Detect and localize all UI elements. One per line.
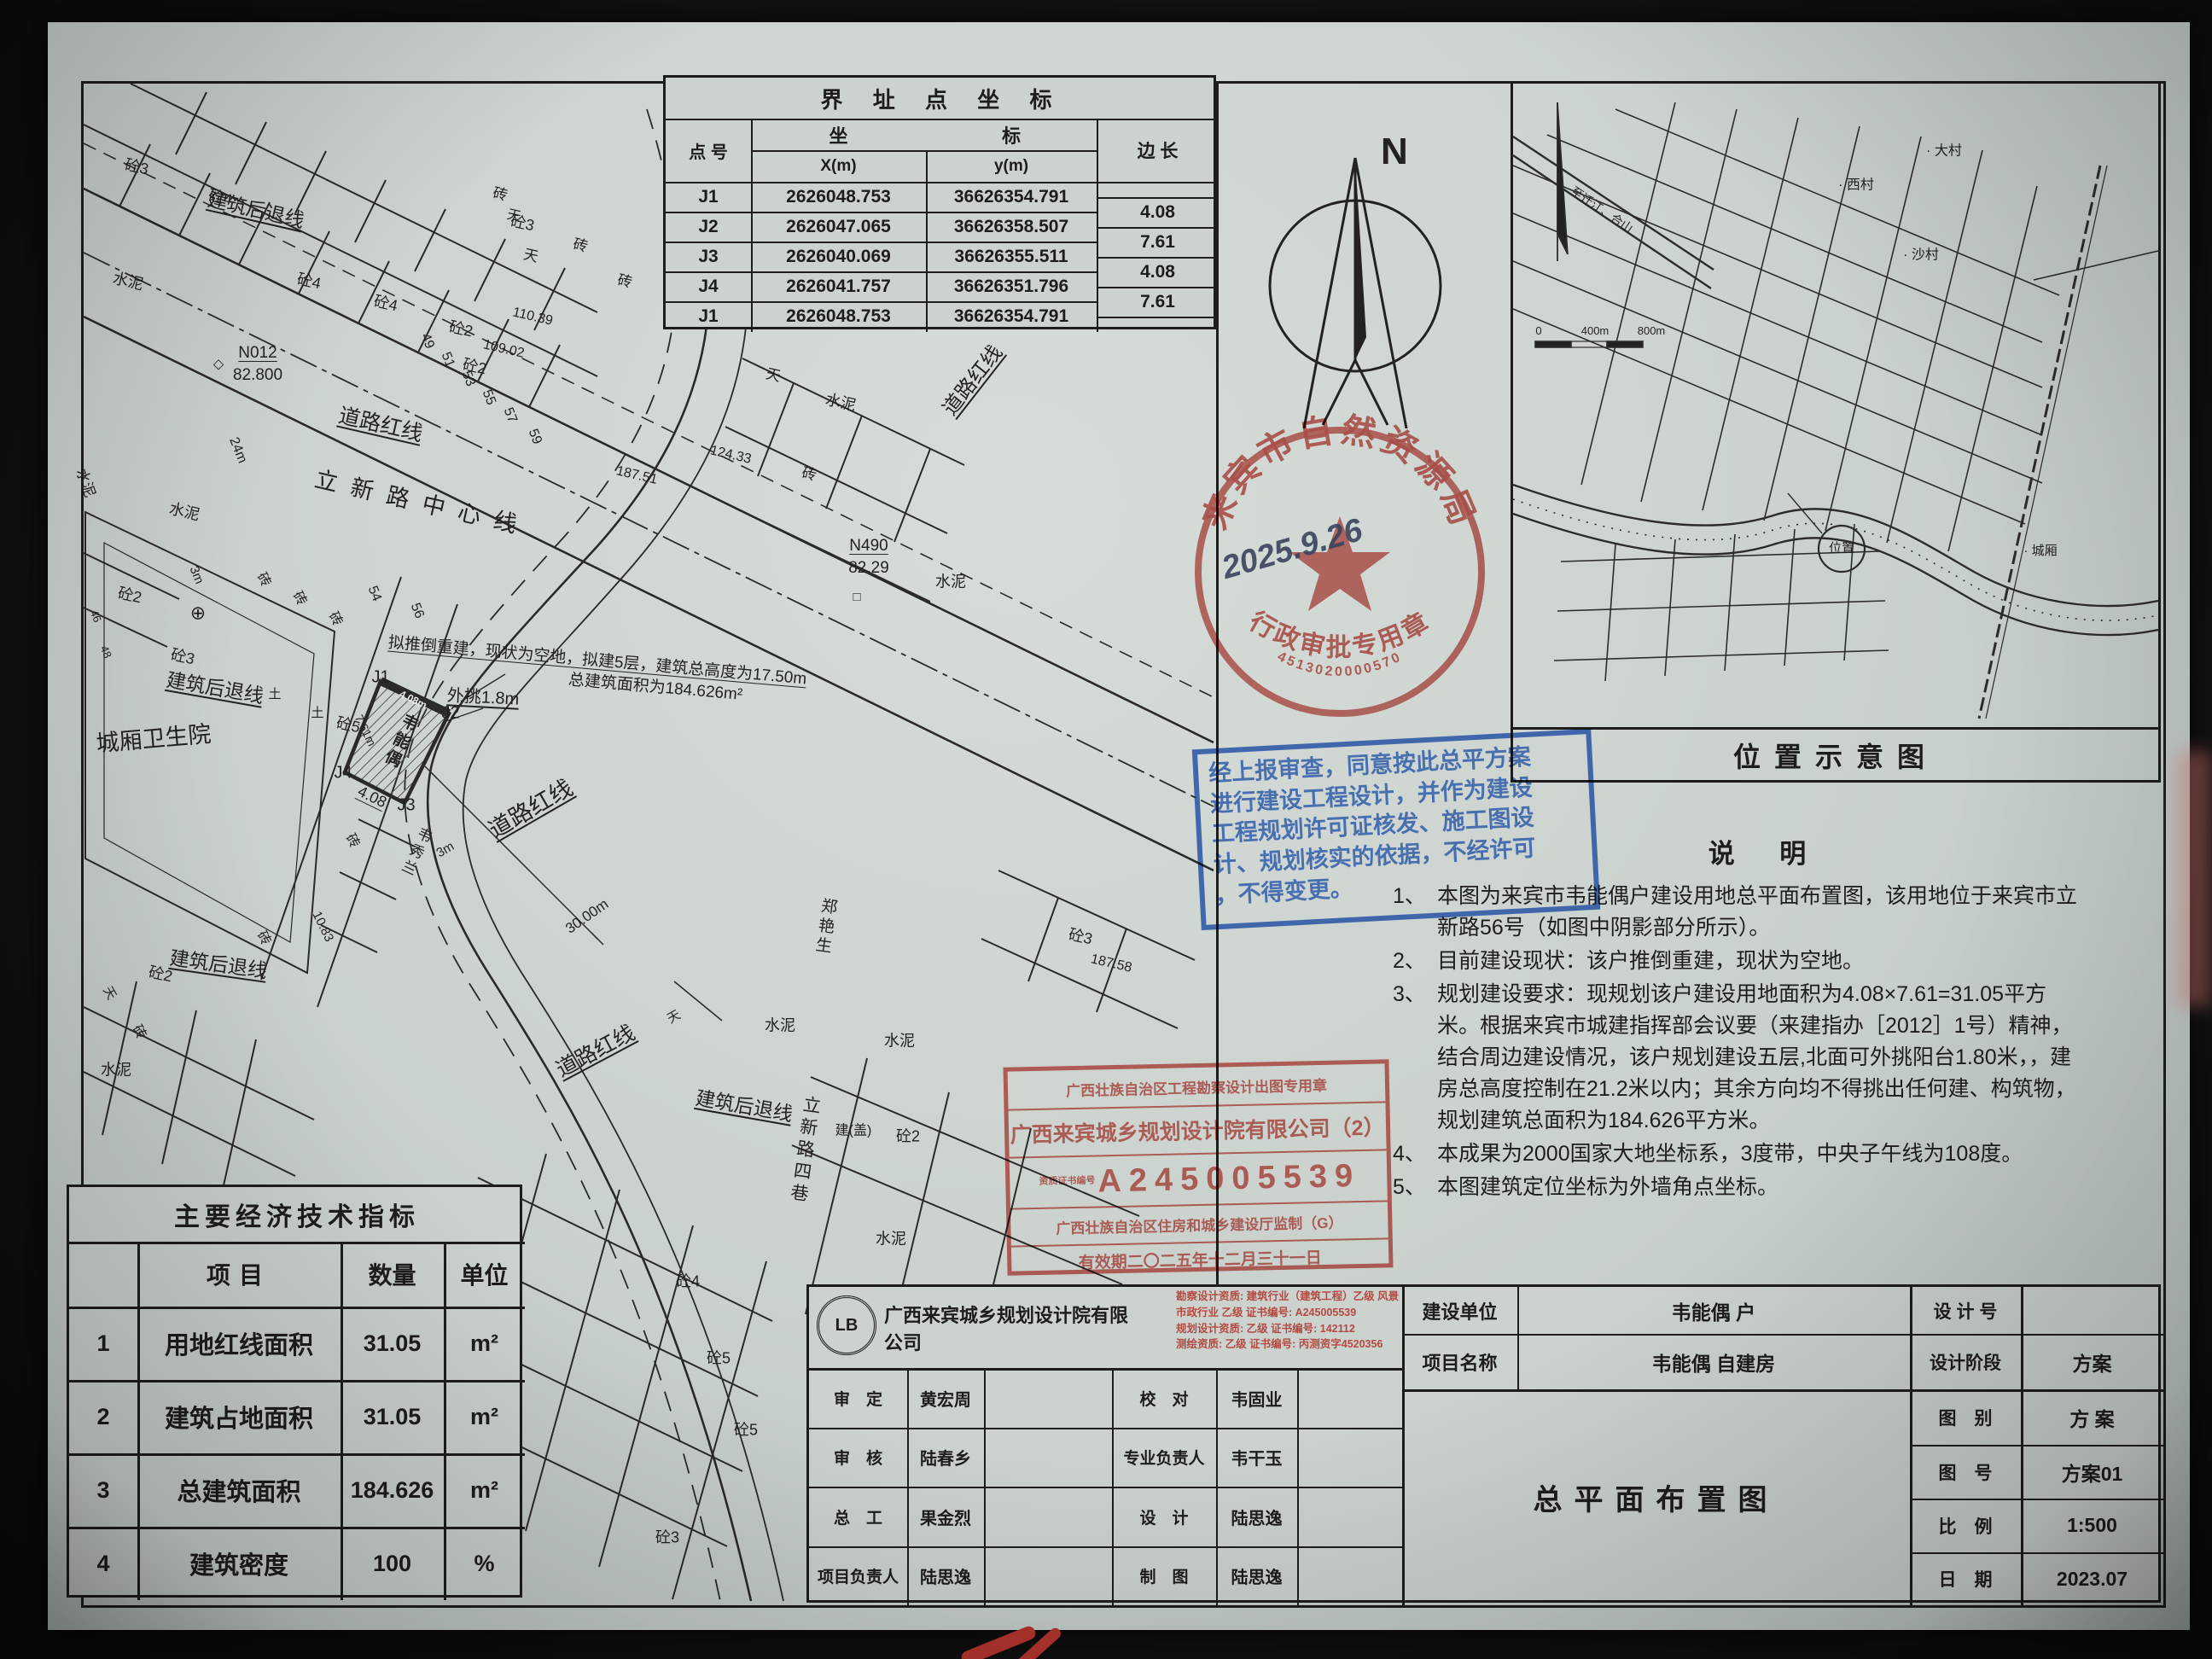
- notes-list: 1、本图为来宾市韦能偶户建设用地总平面布置图，该用地位于来宾市立新路56号（如图…: [1393, 881, 2084, 1205]
- coord-col-zuo: 坐: [751, 119, 926, 150]
- note-item: 2、目前建设现状：该户推倒重建，现状为空地。: [1393, 946, 2084, 977]
- person-name: 果金烈: [907, 1487, 984, 1546]
- plan-label: 砼5: [707, 1351, 731, 1367]
- coord-x: 2626048.753: [751, 182, 926, 212]
- note-number: 4、: [1393, 1138, 1437, 1170]
- plan-label: N012: [238, 345, 276, 362]
- plan-label: ◇: [213, 358, 224, 373]
- note-text: 规划建设要求：现规划该户建设用地面积为4.08×7.61=31.05平方米。根据…: [1437, 979, 2084, 1137]
- cat-value: 方 案: [2021, 1389, 2163, 1445]
- coord-x: 2626047.065: [751, 212, 926, 242]
- location-map-caption: 位置示意图: [1513, 727, 2158, 780]
- note-text: 本成果为2000国家大地坐标系，3度带，中央子午线为108度。: [1437, 1138, 2084, 1170]
- coord-point: J1: [666, 182, 751, 212]
- plan-label: 水泥: [101, 1062, 131, 1079]
- plan-label: J4: [334, 765, 352, 783]
- coord-edge: 7.61: [1097, 227, 1219, 257]
- map-label: 位置: [1829, 542, 1854, 556]
- grid-line: [1097, 317, 1219, 318]
- person-signature: 陆思逸: [1294, 1540, 1405, 1611]
- plan-label: 水泥: [765, 1018, 795, 1034]
- red-qualification-stamp: 广西壮族自治区工程勘察设计出图专用章 广西来宾城乡规划设计院有限公司（2） 资质…: [1003, 1059, 1393, 1275]
- design-no-label: 设 计 号: [1910, 1287, 2021, 1334]
- plan-label: N490: [849, 538, 888, 555]
- plan-label: 砼2: [896, 1129, 920, 1145]
- project-label: 项目名称: [1402, 1334, 1517, 1389]
- person-name: 韦固业: [1216, 1368, 1297, 1428]
- role-label: 审 核: [809, 1428, 907, 1487]
- sheet-label: 图 号: [1910, 1445, 2021, 1499]
- company-logo: LB: [817, 1295, 876, 1355]
- note-item: 3、规划建设要求：现规划该户建设用地面积为4.08×7.61=31.05平方米。…: [1393, 979, 2084, 1137]
- plan-label: 水泥: [935, 574, 966, 591]
- indicator-cell: 4: [69, 1527, 137, 1600]
- credential-line: 规划设计资质: 乙级 证书编号: 142112: [1176, 1321, 1400, 1337]
- map-label: 800m: [1638, 325, 1666, 337]
- cat-label: 图 别: [1910, 1389, 2021, 1445]
- location-map: · 大村· 西村· 沙村· 城厢至迁江、合山0400m800m位置 位置示意图: [1511, 81, 2161, 783]
- note-text: 本图建筑定位坐标为外墙角点坐标。: [1437, 1172, 2084, 1203]
- coord-x: 2626041.757: [751, 271, 926, 301]
- map-label: · 大村: [1926, 145, 1962, 160]
- coord-table-title: 界 址 点 坐 标: [666, 78, 1219, 119]
- coord-edge: 7.61: [1097, 287, 1219, 317]
- person-name: 陆思逸: [1216, 1546, 1297, 1605]
- coord-y: 36626351.796: [926, 271, 1097, 301]
- sheet-value: 方案01: [2021, 1445, 2163, 1499]
- indicator-cell: 184.626: [341, 1453, 444, 1527]
- company-name: 广西来宾城乡规划设计院有限公司: [884, 1294, 1140, 1362]
- indicator-cell: 3: [69, 1453, 137, 1527]
- economic-indicator-table: 主要经济技术指标 项目 数量 单位 1用地红线面积31.05m²2建筑占地面积3…: [67, 1185, 522, 1598]
- plan-label: J2: [441, 705, 459, 723]
- role-label: 审 定: [809, 1368, 907, 1428]
- coord-x: 2626040.069: [751, 242, 926, 271]
- coord-col-point: 点 号: [666, 119, 751, 182]
- indicator-cell: 1: [69, 1307, 137, 1380]
- drawing-title: 总平面布置图: [1402, 1389, 1910, 1605]
- indicator-col-unit: 单位: [444, 1242, 525, 1307]
- design-no-value: [2021, 1287, 2163, 1334]
- scale-label: 比 例: [1910, 1499, 2021, 1552]
- map-label: 400m: [1581, 325, 1610, 337]
- note-item: 5、本图建筑定位坐标为外墙角点坐标。: [1393, 1172, 2084, 1203]
- coord-point: J2: [666, 212, 751, 242]
- notes-title: 说 明: [1673, 832, 1860, 870]
- plan-label: 砼3: [655, 1530, 679, 1546]
- plan-label: 土: [311, 707, 323, 720]
- role-label: 制 图: [1112, 1546, 1216, 1605]
- coord-point: J1: [666, 301, 751, 332]
- role-label: 项目负责人: [809, 1546, 907, 1605]
- map-label: · 城厢: [2023, 544, 2057, 558]
- coord-x: 2626048.753: [751, 301, 926, 332]
- plan-label: ⊕: [190, 602, 206, 622]
- person-name: 韦干玉: [1216, 1428, 1297, 1487]
- plan-label: □: [853, 591, 860, 604]
- indicator-cell: 建筑密度: [137, 1527, 341, 1600]
- north-compass: N: [1270, 111, 1441, 435]
- red-stamp-cert-no: A245005539: [1097, 1158, 1360, 1200]
- indicator-cell: %: [444, 1527, 525, 1600]
- person-name: 黄宏周: [907, 1368, 984, 1428]
- location-map-drawing: [1513, 84, 2158, 728]
- coord-edge: 4.08: [1097, 197, 1219, 227]
- date-value: 2023.07: [2021, 1552, 2163, 1605]
- coord-y: 36626354.791: [926, 301, 1097, 332]
- indicator-cell: 建筑占地面积: [137, 1380, 341, 1453]
- photographed-site-plan-sheet: 建筑后退线砼3水泥砼4砼4砼4砼2砖天砖砖砼3110.39砼2109.02◇N0…: [0, 0, 2212, 1659]
- note-number: 3、: [1393, 979, 1437, 1137]
- stage-label: 设计阶段: [1910, 1334, 2021, 1389]
- coord-y: 36626354.791: [926, 182, 1097, 212]
- map-label: · 沙村: [1903, 249, 1939, 264]
- indicator-cell: 100: [341, 1527, 444, 1600]
- coord-col-x: X(m): [751, 150, 926, 182]
- indicator-cell: 总建筑面积: [137, 1453, 341, 1527]
- red-stamp-cert-label: 资质证书编号: [1036, 1176, 1097, 1189]
- indicator-title: 主要经济技术指标: [69, 1187, 525, 1242]
- indicator-cell: 31.05: [341, 1380, 444, 1453]
- indicator-col-qty: 数量: [341, 1242, 444, 1307]
- plan-label: 水泥: [876, 1231, 906, 1248]
- coord-y: 36626358.507: [926, 212, 1097, 242]
- boundary-point-coordinate-table: 界 址 点 坐 标 点 号 坐 标 X(m) y(m) 边 长 J1262604…: [663, 75, 1216, 329]
- indicator-cell: 用地红线面积: [137, 1307, 341, 1380]
- note-item: 4、本成果为2000国家大地坐标系，3度带，中央子午线为108度。: [1393, 1138, 2084, 1170]
- plan-label: J3: [397, 797, 415, 815]
- coord-col-edge: 边 长: [1097, 119, 1219, 182]
- coord-y: 36626355.511: [926, 242, 1097, 271]
- plan-label: 土: [268, 688, 281, 701]
- coord-edge: 4.08: [1097, 257, 1219, 287]
- svg-text:行政审批专用章: 行政审批专用章: [1243, 606, 1435, 662]
- role-label: 总 工: [809, 1487, 907, 1546]
- plan-label: 砼5: [734, 1423, 758, 1439]
- plan-label: 82.800: [233, 367, 282, 384]
- plan-label: J1: [371, 669, 389, 687]
- stamp-sub-text: 行政审批专用章: [1243, 606, 1435, 662]
- indicator-cell: m²: [444, 1380, 525, 1453]
- credential-line: 勘察设计资质: 建筑行业（建筑工程）乙级 风景园林: [1176, 1289, 1400, 1305]
- coord-point: J3: [666, 242, 751, 271]
- date-label: 日 期: [1910, 1552, 2021, 1605]
- indicator-cell: 2: [69, 1380, 137, 1453]
- credential-line: 市政行业 乙级 证书编号: A245005539: [1176, 1305, 1400, 1321]
- coord-point: J4: [666, 271, 751, 301]
- blue-approval-stamp: 经上报审查，同意按此总平方案进行建设工程设计，并作为建设工程规划许可证核发、施工…: [1192, 729, 1600, 930]
- person-name: 陆思逸: [907, 1546, 984, 1605]
- client-value: 韦能偶 户: [1517, 1287, 1910, 1334]
- map-label: 0: [1535, 325, 1541, 337]
- person-name: 陆思逸: [1216, 1487, 1297, 1546]
- indicator-cell: 31.05: [341, 1307, 444, 1380]
- company-credentials: 勘察设计资质: 建筑行业（建筑工程）乙级 风景园林市政行业 乙级 证书编号: A…: [1176, 1289, 1400, 1364]
- note-number: 5、: [1393, 1172, 1437, 1203]
- scale-value: 1:500: [2021, 1499, 2163, 1552]
- indicator-cell: m²: [444, 1307, 525, 1380]
- credential-line: 测绘资质: 乙级 证书编号: 丙测资字4520356: [1176, 1336, 1400, 1353]
- note-text: 目前建设现状：该户推倒重建，现状为空地。: [1437, 946, 2084, 977]
- title-block: 广西来宾城乡规划设计院有限公司 审 定黄宏周黄宏周校 对韦固业韦固业审 核陆春乡…: [806, 1284, 2161, 1603]
- plan-label: 砼4: [676, 1274, 700, 1290]
- stage-value: 方案: [2021, 1334, 2163, 1389]
- plan-label: 水泥: [884, 1033, 915, 1050]
- project-value: 韦能偶 自建房: [1517, 1334, 1910, 1389]
- indicator-col-item: 项目: [137, 1242, 341, 1307]
- coord-col-biao: 标: [926, 119, 1097, 150]
- indicator-cell: m²: [444, 1453, 525, 1527]
- north-label: N: [1381, 131, 1408, 172]
- client-label: 建设单位: [1402, 1287, 1517, 1334]
- person-name: 陆春乡: [907, 1428, 984, 1487]
- plan-label: 82.29: [848, 560, 889, 577]
- plan-label: 建(盖): [835, 1125, 872, 1139]
- coord-col-y: y(m): [926, 150, 1097, 182]
- role-label: 设 计: [1112, 1487, 1216, 1546]
- role-label: 校 对: [1112, 1368, 1216, 1428]
- red-stamp-line2: 广西来宾城乡规划设计院有限公司（2）: [1009, 1103, 1387, 1158]
- role-label: 专业负责人: [1112, 1428, 1216, 1487]
- note-number: 2、: [1393, 946, 1437, 977]
- photo-artifact: [2178, 751, 2212, 1007]
- map-label: · 西村: [1838, 179, 1874, 194]
